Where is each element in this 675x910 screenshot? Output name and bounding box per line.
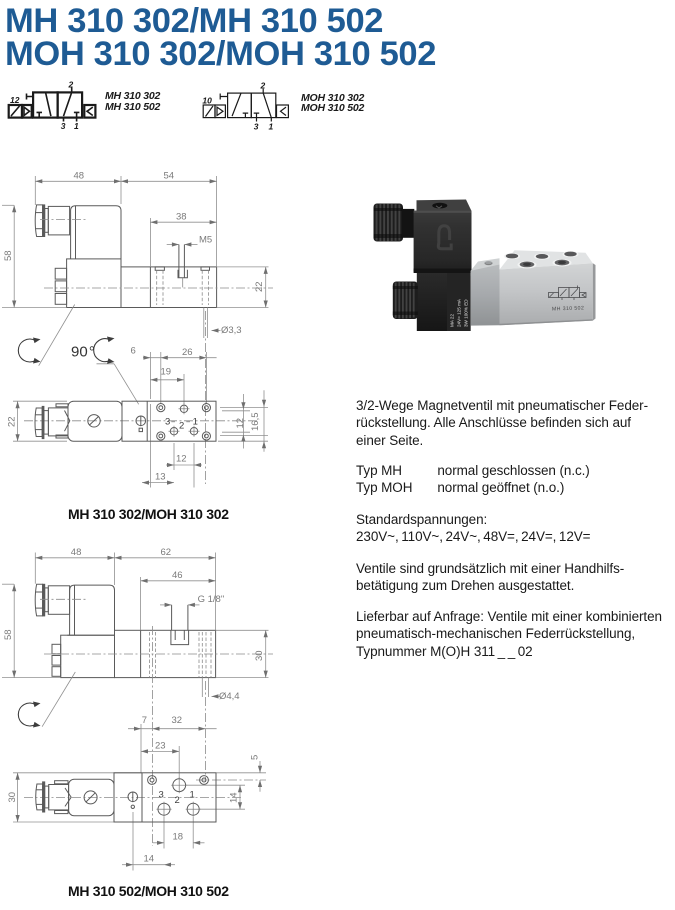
svg-text:MH 310 502: MH 310 502 <box>552 305 584 312</box>
svg-text:18: 18 <box>173 832 184 843</box>
svg-text:23: 23 <box>155 741 166 752</box>
svg-text:22: 22 <box>7 416 18 427</box>
svg-text:62: 62 <box>161 547 172 558</box>
svg-text:2: 2 <box>260 81 266 91</box>
svg-text:2: 2 <box>175 795 180 806</box>
svg-text:14: 14 <box>144 854 155 865</box>
svg-text:22: 22 <box>254 281 265 292</box>
svg-text:58: 58 <box>3 629 14 640</box>
svg-text:3: 3 <box>165 416 170 427</box>
svg-text:90 °: 90 ° <box>71 344 95 361</box>
svg-text:M5: M5 <box>199 234 212 245</box>
svg-text:48: 48 <box>71 547 82 558</box>
svg-text:2: 2 <box>68 80 74 90</box>
svg-text:38: 38 <box>176 211 187 222</box>
svg-text:Ø3,3: Ø3,3 <box>221 325 242 336</box>
svg-text:6: 6 <box>131 346 136 357</box>
svg-text:Ø4,4: Ø4,4 <box>219 691 240 702</box>
svg-text:14: 14 <box>229 792 240 803</box>
svg-text:3: 3 <box>159 790 164 801</box>
svg-text:13: 13 <box>155 472 166 483</box>
svg-text:12: 12 <box>10 95 20 105</box>
svg-text:3W 100% ED: 3W 100% ED <box>464 299 469 327</box>
svg-text:3: 3 <box>61 121 66 131</box>
svg-text:32: 32 <box>172 715 183 726</box>
svg-text:46: 46 <box>172 570 183 581</box>
svg-text:7: 7 <box>142 715 147 726</box>
svg-text:10: 10 <box>202 96 212 106</box>
svg-text:16,5: 16,5 <box>250 413 261 432</box>
svg-text:G 1/8": G 1/8" <box>198 594 225 605</box>
svg-text:30: 30 <box>254 650 265 661</box>
svg-text:30: 30 <box>7 792 18 803</box>
svg-text:1: 1 <box>74 121 79 131</box>
svg-text:19: 19 <box>161 367 172 378</box>
svg-text:1: 1 <box>269 122 274 132</box>
svg-text:58: 58 <box>3 250 14 261</box>
svg-text:24V= 125 mA: 24V= 125 mA <box>457 298 462 327</box>
svg-text:48: 48 <box>74 170 85 181</box>
svg-text:2: 2 <box>179 420 184 431</box>
svg-text:26: 26 <box>182 347 193 358</box>
svg-text:1: 1 <box>190 790 195 801</box>
svg-text:54: 54 <box>164 170 175 181</box>
svg-text:5: 5 <box>250 755 261 760</box>
svg-text:12: 12 <box>235 418 246 429</box>
svg-text:3: 3 <box>254 122 259 132</box>
svg-text:1: 1 <box>193 416 198 427</box>
svg-text:12: 12 <box>176 454 187 465</box>
svg-text:MA 22: MA 22 <box>450 314 455 327</box>
